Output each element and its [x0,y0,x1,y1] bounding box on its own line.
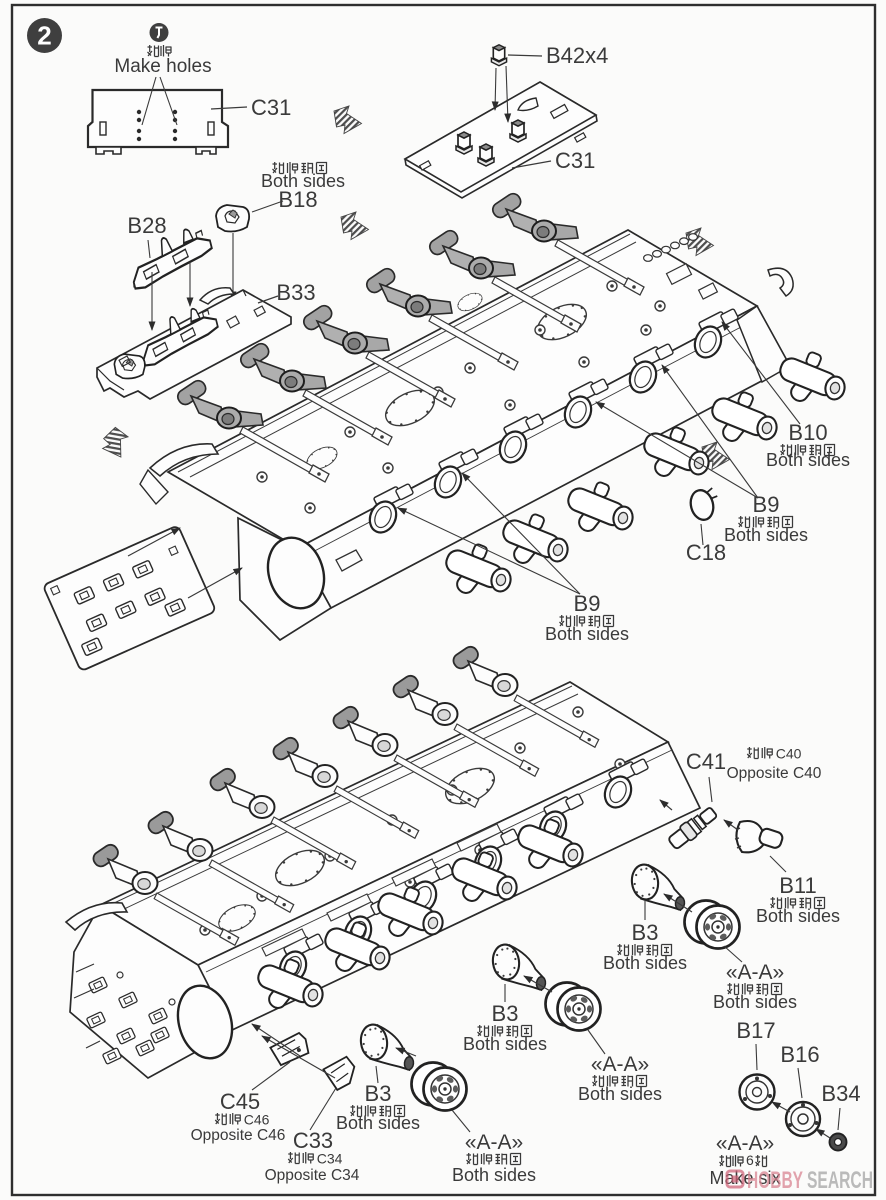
svg-text:B3: B3 [365,1081,392,1106]
svg-text:«A-A»: «A-A» [591,1053,649,1076]
svg-text:B10: B10 [788,420,827,445]
svg-text:Both sides: Both sides [713,992,797,1012]
svg-text:B18: B18 [278,187,317,212]
svg-text:B3: B3 [632,920,659,945]
svg-text:Both sides: Both sides [756,906,840,926]
svg-text:HOBBY: HOBBY [747,1167,803,1194]
svg-text:B42x4: B42x4 [546,43,608,68]
svg-text:Both sides: Both sides [452,1165,536,1185]
svg-text:«A-A»: «A-A» [726,961,784,984]
svg-text:C31: C31 [555,148,595,173]
svg-text:C40: C40 [776,746,802,762]
svg-text:B17: B17 [736,1018,775,1043]
svg-text:C34: C34 [317,1151,343,1167]
svg-text:Both sides: Both sides [578,1084,662,1104]
svg-text:C45: C45 [220,1089,260,1114]
svg-text:C31: C31 [251,95,291,120]
svg-text:Opposite C46: Opposite C46 [191,1127,286,1144]
svg-text:Both sides: Both sides [766,450,850,470]
svg-text:C41: C41 [686,749,726,774]
svg-text:C46: C46 [244,1112,270,1128]
svg-text:Both sides: Both sides [724,525,808,545]
svg-text:Both sides: Both sides [336,1113,420,1133]
svg-text:2: 2 [37,21,51,51]
svg-text:Make holes: Make holes [114,56,211,77]
svg-text:B33: B33 [276,280,315,305]
svg-text:B9: B9 [574,591,601,616]
svg-text:C33: C33 [293,1128,333,1153]
svg-text:«A-A»: «A-A» [465,1131,523,1154]
svg-text:«A-A»: «A-A» [716,1132,774,1155]
svg-text:B28: B28 [127,213,166,238]
svg-text:6: 6 [746,1152,754,1168]
svg-text:Both sides: Both sides [463,1034,547,1054]
svg-text:Both sides: Both sides [603,953,687,973]
svg-text:SEARCH: SEARCH [807,1167,873,1194]
svg-text:Opposite C40: Opposite C40 [727,765,822,782]
svg-text:B16: B16 [780,1042,819,1067]
svg-text:B34: B34 [821,1081,860,1106]
svg-text:Opposite C34: Opposite C34 [265,1167,360,1184]
svg-text:Both sides: Both sides [545,624,629,644]
svg-text:B3: B3 [492,1001,519,1026]
svg-text:B11: B11 [779,873,817,898]
svg-text:B9: B9 [753,492,780,517]
svg-text:C18: C18 [686,540,726,565]
